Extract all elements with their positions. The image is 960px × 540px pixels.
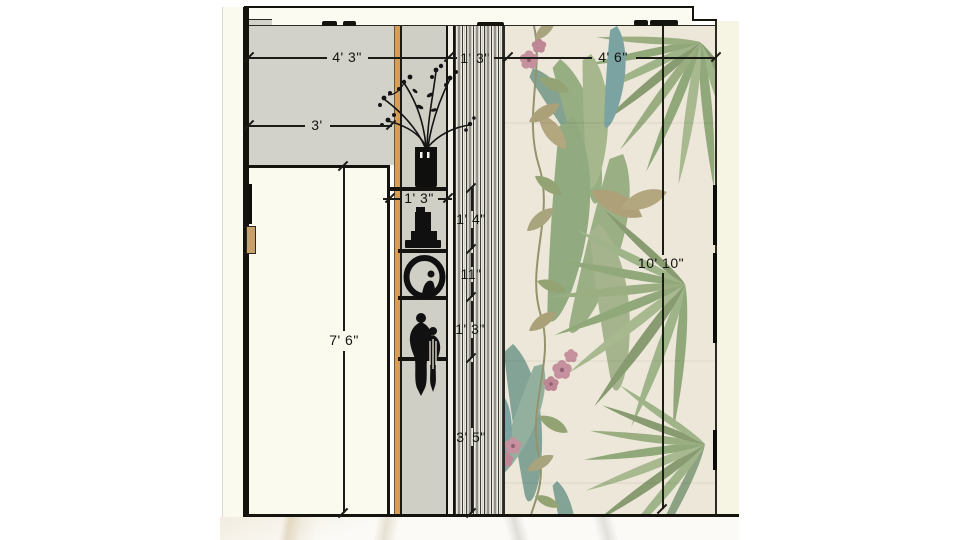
dim-line-segment <box>662 26 664 255</box>
figurine-couple <box>410 313 440 396</box>
dim-line-segment <box>471 446 473 513</box>
dim-label-shelf-gap3: 1' 3" <box>455 322 485 336</box>
dim-line-segment <box>368 57 457 59</box>
elevation-drawing-canvas: 4' 3" 1' 3" 4' 6" 3' 1' 3" 1' 4" 11" 1' … <box>0 0 960 540</box>
door-panel <box>249 165 390 515</box>
shelf-decor-objects <box>370 55 480 405</box>
dim-label-shelf-gap1: 1' 4" <box>456 212 486 226</box>
ring-sculpture <box>407 258 443 296</box>
right-edge-dash-2 <box>713 253 717 343</box>
door-hinge <box>249 184 252 224</box>
dim-label-slat-width: 1' 3" <box>460 51 490 65</box>
dim-label-wall-height: 10' 10" <box>638 256 684 270</box>
floor-marble <box>220 517 739 540</box>
dim-line-segment <box>471 301 473 322</box>
right-edge-dash-3 <box>713 430 717 470</box>
ceiling-cove <box>249 8 693 26</box>
dim-label-door-height: 7' 6" <box>329 333 359 347</box>
dim-line-segment <box>636 57 716 59</box>
right-edge-dash-1 <box>713 185 717 245</box>
stacked-sculpture <box>405 207 441 248</box>
vase-branches <box>384 71 470 147</box>
dim-line-segment <box>471 188 473 211</box>
dim-label-wallpaper-width: 4' 6" <box>598 50 628 64</box>
dim-line-segment <box>249 57 327 59</box>
ceiling-right-step-horizontal <box>692 19 717 21</box>
dim-line-segment <box>249 125 305 127</box>
vase <box>415 147 437 187</box>
door-handle <box>246 226 256 254</box>
dim-label-door-width: 3' <box>311 118 322 132</box>
dim-line-segment <box>662 273 664 509</box>
dim-line-segment <box>330 125 392 127</box>
dim-label-left-width: 4' 3" <box>332 50 362 64</box>
dim-line-segment <box>471 253 473 267</box>
dim-line-segment <box>343 351 345 513</box>
ceiling-right-step-vertical <box>692 6 694 20</box>
dim-line-segment <box>471 362 473 428</box>
dim-line-segment <box>343 168 345 331</box>
dim-label-shelf-gap2: 11" <box>460 267 481 281</box>
left-return-wall <box>222 7 244 517</box>
dim-label-niche-width: 1' 3" <box>404 191 434 205</box>
dim-label-shelf-gap4: 3' 5" <box>456 430 486 444</box>
right-return-wall <box>715 21 739 515</box>
